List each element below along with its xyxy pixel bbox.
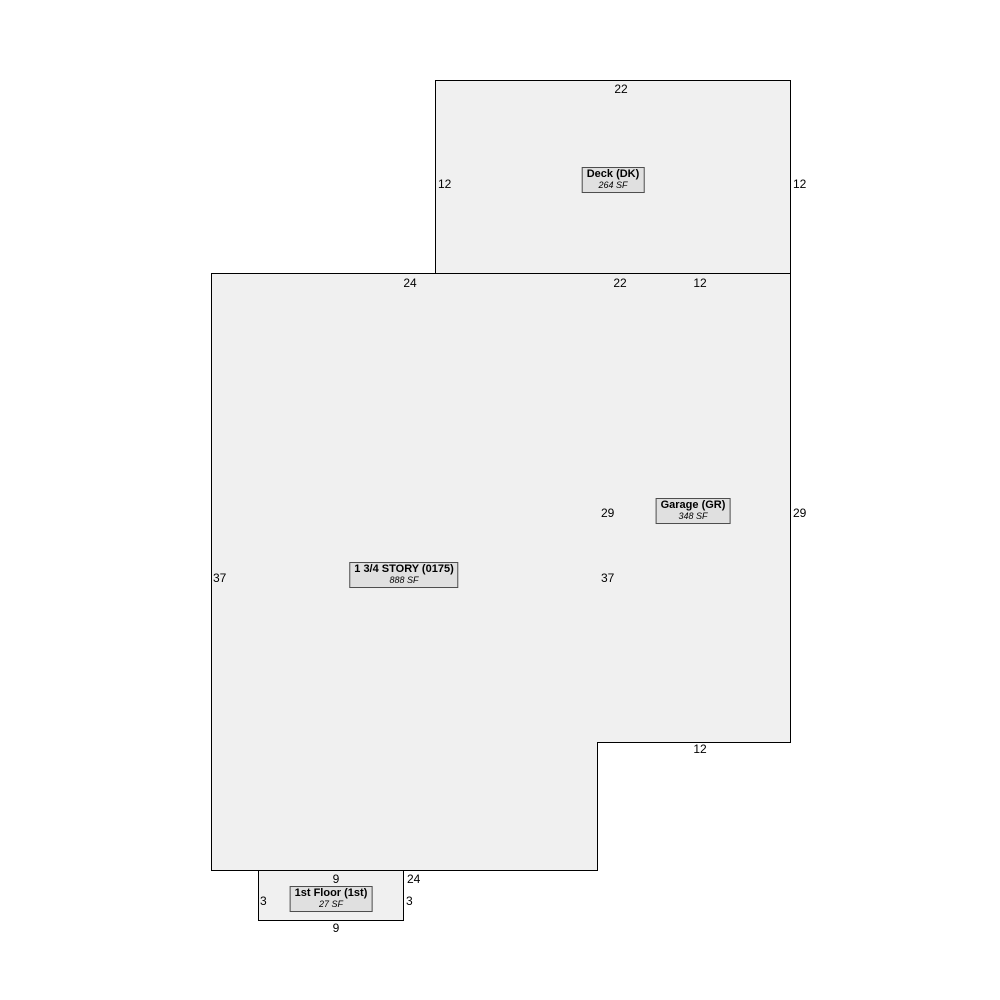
dim-story-left: 37	[213, 571, 226, 585]
room-label-first-floor: 1st Floor (1st) 27 SF	[290, 886, 373, 912]
floorplan-sketch-canvas: Deck (DK) 264 SF 1 3/4 STORY (0175) 888 …	[0, 0, 1000, 1000]
room-title-garage: Garage (GR)	[661, 500, 726, 512]
dim-story-right: 37	[601, 571, 614, 585]
room-area-first-floor: 27 SF	[295, 900, 368, 909]
dim-story-top: 24	[403, 276, 416, 290]
dim-story-bottom: 24	[407, 872, 420, 886]
dim-first-floor-right: 3	[406, 894, 413, 908]
dim-garage-right: 29	[793, 506, 806, 520]
room-title-story: 1 3/4 STORY (0175)	[354, 564, 453, 576]
room-label-deck: Deck (DK) 264 SF	[582, 167, 645, 193]
dim-first-floor-bottom: 9	[333, 921, 340, 935]
room-title-deck: Deck (DK)	[587, 169, 640, 181]
dim-deck-top: 22	[614, 82, 627, 96]
dim-first-floor-top: 9	[333, 872, 340, 886]
room-area-garage: 348 SF	[661, 512, 726, 521]
dim-deck-right: 12	[793, 177, 806, 191]
room-label-garage: Garage (GR) 348 SF	[656, 498, 731, 524]
dim-garage-left: 29	[601, 506, 614, 520]
room-area-story: 888 SF	[354, 576, 453, 585]
dim-first-floor-left: 3	[260, 894, 267, 908]
room-title-first-floor: 1st Floor (1st)	[295, 888, 368, 900]
room-label-story: 1 3/4 STORY (0175) 888 SF	[349, 562, 458, 588]
dim-garage-bottom: 12	[693, 742, 706, 756]
room-area-deck: 264 SF	[587, 181, 640, 190]
dim-deck-bottom: 22	[613, 276, 626, 290]
dim-garage-top: 12	[693, 276, 706, 290]
dim-deck-left: 12	[438, 177, 451, 191]
